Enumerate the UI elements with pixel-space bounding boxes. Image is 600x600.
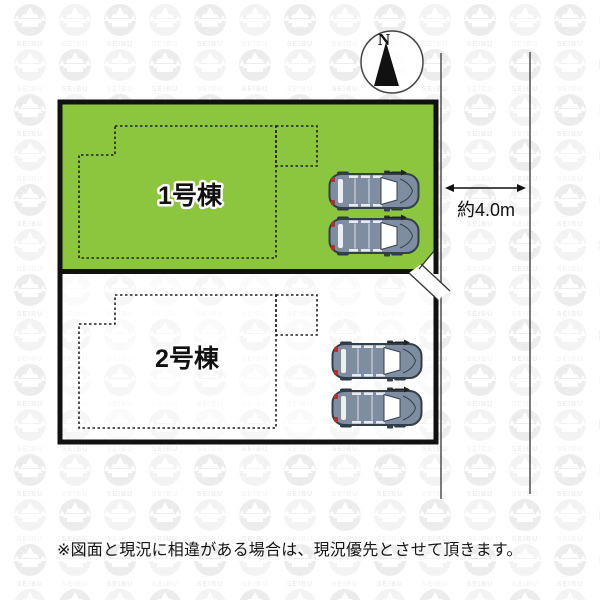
site-plan-svg: 1号棟 2号棟 N 約4.0m (0, 0, 600, 600)
lot2-label: 2号棟 (155, 345, 220, 373)
north-label: N (378, 30, 391, 49)
car-icon (330, 170, 419, 212)
car-icon (333, 340, 422, 382)
site-plan-image: SEIBUSEIBUSEIBUSEIBUSEIBUSEIBUSEIBUSEIBU… (0, 0, 600, 600)
disclaimer-text: ※図面と現況に相違がある場合は、現況優先とさせて頂きます。 (57, 536, 523, 560)
car-icon (330, 215, 419, 257)
lot1-label: 1号棟 (158, 182, 223, 210)
north-compass-icon: N (361, 30, 423, 93)
road-lines (441, 52, 530, 499)
road-width-label: 約4.0m (457, 200, 515, 220)
car-icon (333, 387, 422, 429)
width-dimension-arrow: 約4.0m (445, 184, 526, 220)
